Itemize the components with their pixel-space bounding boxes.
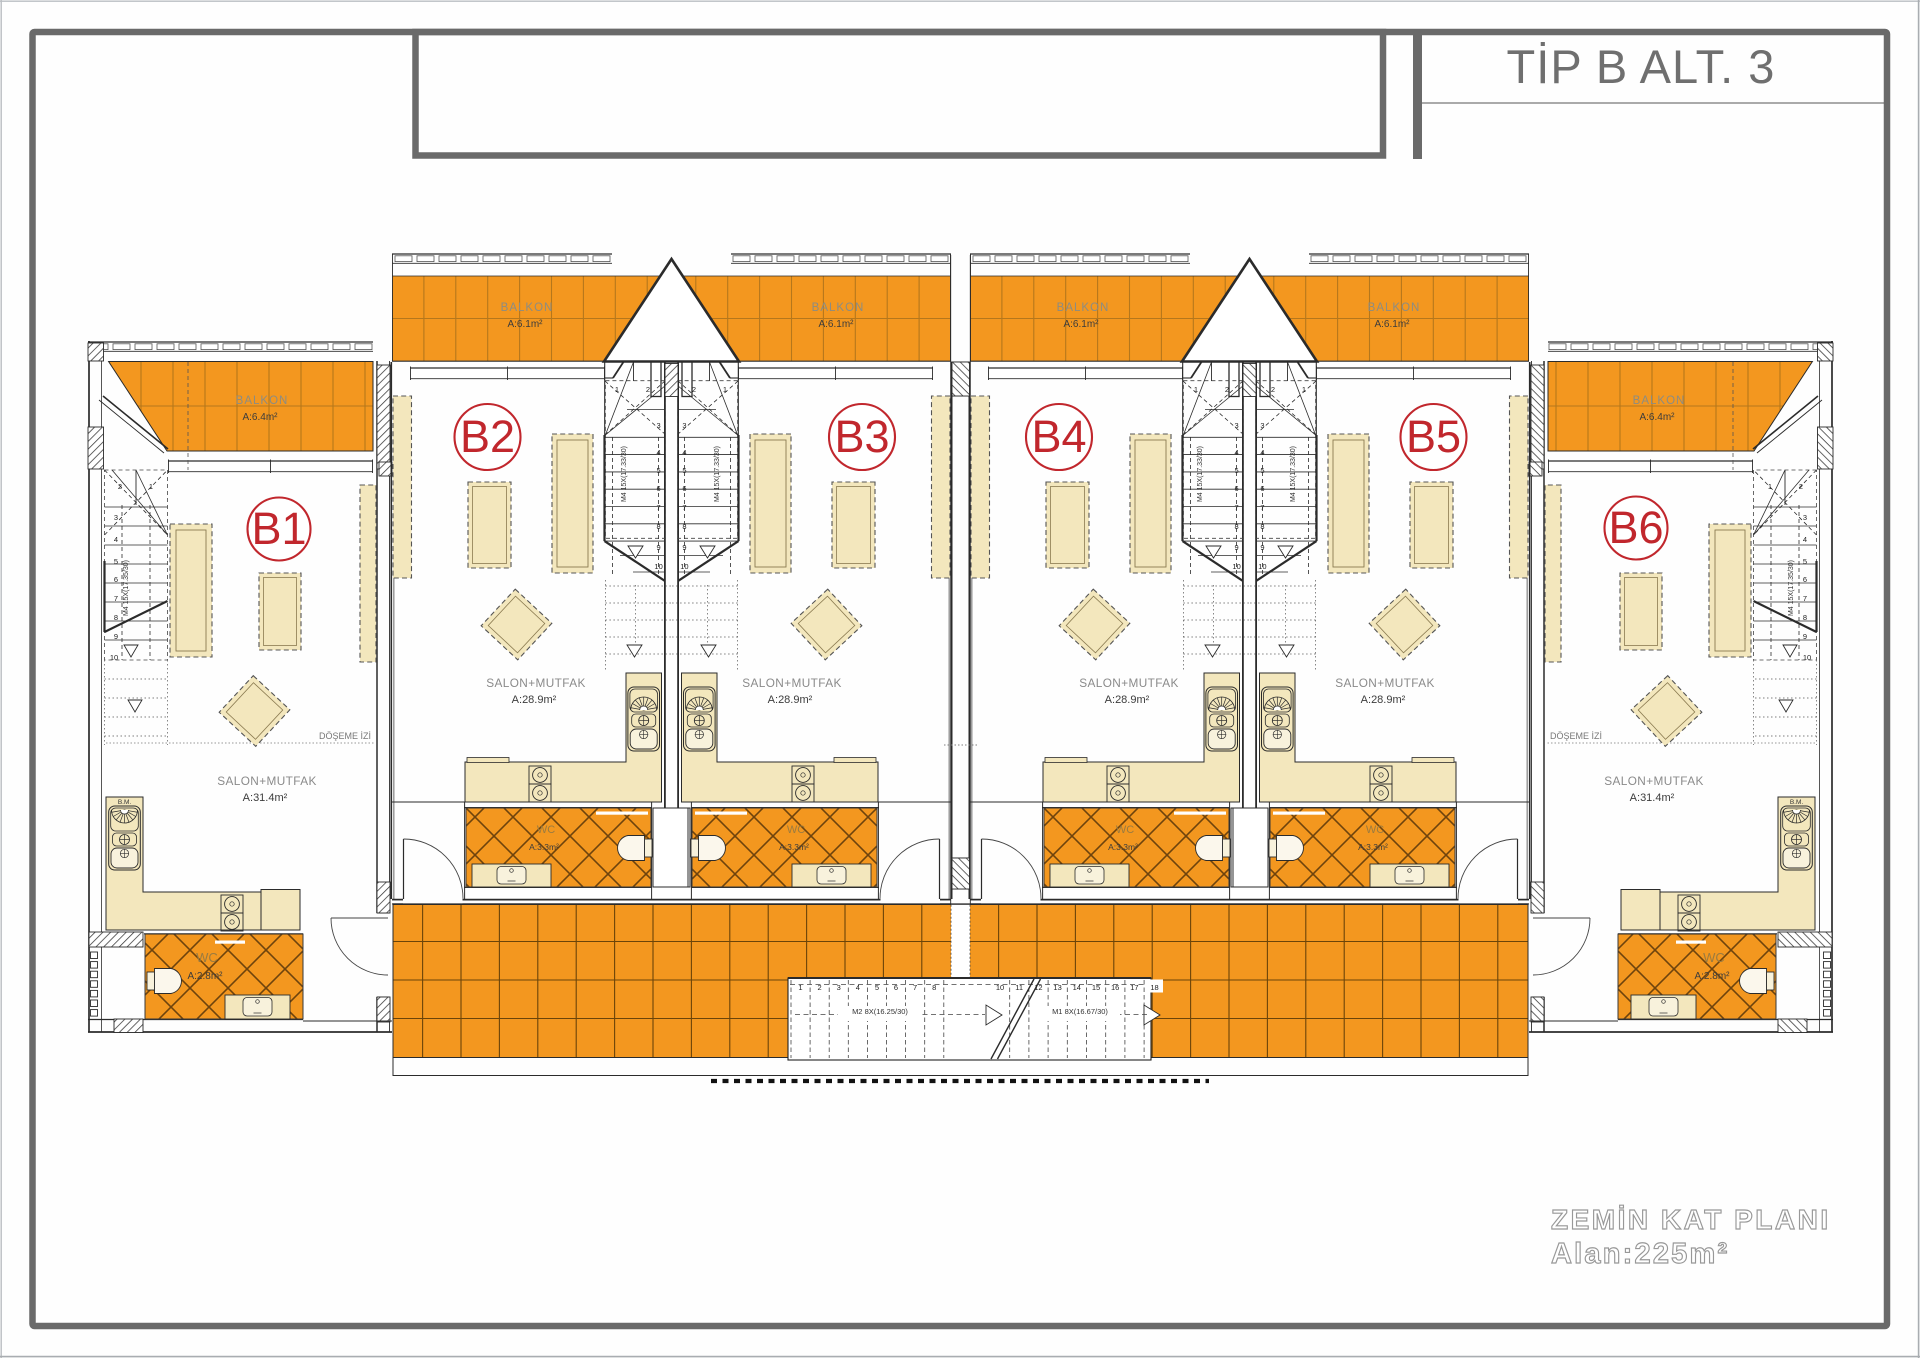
- svg-text:6: 6: [894, 983, 898, 992]
- svg-text:2: 2: [646, 385, 650, 394]
- svg-text:ZEMİN KAT PLANI: ZEMİN KAT PLANI: [1551, 1204, 1831, 1235]
- svg-text:4: 4: [856, 983, 860, 992]
- svg-text:M4 15X(17.35/30): M4 15X(17.35/30): [1788, 560, 1795, 616]
- svg-text:6: 6: [657, 484, 661, 493]
- svg-text:5: 5: [1260, 466, 1264, 475]
- svg-text:A:28.9m²: A:28.9m²: [512, 694, 557, 706]
- svg-text:BALKON: BALKON: [1057, 302, 1110, 314]
- svg-text:5: 5: [657, 466, 661, 475]
- svg-text:7: 7: [1260, 503, 1264, 512]
- svg-text:2: 2: [1271, 385, 1275, 394]
- svg-text:2: 2: [692, 385, 696, 394]
- svg-text:13: 13: [1053, 983, 1061, 992]
- svg-text:9: 9: [1803, 632, 1807, 641]
- svg-text:BALKON: BALKON: [1633, 395, 1686, 407]
- svg-text:8: 8: [114, 613, 118, 622]
- svg-text:4: 4: [657, 448, 661, 457]
- svg-text:10: 10: [654, 562, 662, 571]
- svg-text:3: 3: [837, 983, 841, 992]
- svg-text:WC: WC: [1116, 824, 1134, 836]
- svg-text:A:6.1m²: A:6.1m²: [1374, 319, 1410, 330]
- svg-text:1: 1: [1302, 385, 1306, 394]
- svg-text:17: 17: [1130, 983, 1138, 992]
- svg-text:WC: WC: [537, 824, 555, 836]
- svg-text:A:2.8m²: A:2.8m²: [1694, 971, 1730, 982]
- svg-text:A:6.1m²: A:6.1m²: [818, 319, 854, 330]
- svg-text:A:6.1m²: A:6.1m²: [1063, 319, 1099, 330]
- svg-text:15: 15: [1092, 983, 1100, 992]
- svg-text:A:6.4m²: A:6.4m²: [1639, 412, 1675, 423]
- svg-text:DÖŞEME İZİ: DÖŞEME İZİ: [1550, 731, 1602, 741]
- svg-text:10: 10: [1258, 562, 1266, 571]
- svg-text:4: 4: [1803, 535, 1807, 544]
- svg-text:4: 4: [1260, 448, 1264, 457]
- svg-text:M4 15X(17.33/30): M4 15X(17.33/30): [1290, 446, 1297, 502]
- svg-text:SALON+MUTFAK: SALON+MUTFAK: [1079, 676, 1179, 690]
- svg-text:5: 5: [114, 557, 118, 566]
- svg-text:B.M.: B.M.: [118, 799, 132, 806]
- svg-text:WC: WC: [787, 824, 805, 836]
- svg-text:A:31.4m²: A:31.4m²: [1630, 792, 1675, 804]
- svg-text:1: 1: [1194, 385, 1198, 394]
- svg-text:B.M.: B.M.: [1790, 799, 1804, 806]
- svg-text:A:6.4m²: A:6.4m²: [242, 412, 278, 423]
- svg-text:1: 1: [149, 482, 153, 491]
- svg-text:5: 5: [875, 983, 879, 992]
- svg-text:5: 5: [682, 466, 686, 475]
- svg-text:6: 6: [682, 484, 686, 493]
- svg-text:2: 2: [118, 482, 122, 491]
- svg-text:5: 5: [1235, 466, 1239, 475]
- svg-text:A:28.9m²: A:28.9m²: [1361, 694, 1406, 706]
- svg-text:1: 1: [723, 385, 727, 394]
- svg-text:A:3.3m²: A:3.3m²: [1358, 842, 1388, 852]
- svg-text:BALKON: BALKON: [501, 302, 554, 314]
- svg-text:9: 9: [114, 632, 118, 641]
- svg-text:9: 9: [1260, 543, 1264, 552]
- svg-text:A:2.8m²: A:2.8m²: [187, 971, 223, 982]
- svg-text:7: 7: [913, 983, 917, 992]
- svg-text:BALKON: BALKON: [1368, 302, 1421, 314]
- svg-text:B4: B4: [1031, 411, 1086, 462]
- svg-text:3: 3: [114, 513, 118, 522]
- svg-text:SALON+MUTFAK: SALON+MUTFAK: [217, 774, 317, 788]
- svg-text:SALON+MUTFAK: SALON+MUTFAK: [1604, 774, 1704, 788]
- svg-text:A:3.3m²: A:3.3m²: [1108, 842, 1138, 852]
- svg-text:6: 6: [1803, 575, 1807, 584]
- svg-text:18: 18: [1150, 983, 1158, 992]
- svg-text:10: 10: [680, 562, 688, 571]
- svg-text:8: 8: [1803, 613, 1807, 622]
- svg-text:3: 3: [682, 421, 686, 430]
- svg-text:A:3.3m²: A:3.3m²: [779, 842, 809, 852]
- svg-text:B5: B5: [1406, 411, 1461, 462]
- svg-text:11: 11: [1015, 983, 1023, 992]
- svg-text:BALKON: BALKON: [812, 302, 865, 314]
- svg-text:A:3.3m²: A:3.3m²: [529, 842, 559, 852]
- svg-text:7: 7: [114, 594, 118, 603]
- svg-text:10: 10: [996, 983, 1004, 992]
- svg-text:9: 9: [682, 543, 686, 552]
- svg-text:M4 15X(17.35/30): M4 15X(17.35/30): [123, 560, 130, 616]
- svg-text:1: 1: [1768, 482, 1772, 491]
- svg-text:A:6.1m²: A:6.1m²: [507, 319, 543, 330]
- svg-text:7: 7: [657, 503, 661, 512]
- svg-text:8: 8: [1260, 522, 1264, 531]
- svg-text:8: 8: [932, 983, 936, 992]
- svg-text:10: 10: [110, 653, 118, 662]
- svg-text:8: 8: [682, 522, 686, 531]
- svg-text:6: 6: [114, 575, 118, 584]
- svg-text:TİP B ALT. 3: TİP B ALT. 3: [1507, 40, 1776, 93]
- svg-text:14: 14: [1073, 983, 1081, 992]
- svg-text:Alan:225m²: Alan:225m²: [1551, 1238, 1729, 1270]
- svg-text:B2: B2: [460, 411, 515, 462]
- svg-text:A:28.9m²: A:28.9m²: [1105, 694, 1150, 706]
- svg-text:7: 7: [682, 503, 686, 512]
- svg-text:SALON+MUTFAK: SALON+MUTFAK: [742, 676, 842, 690]
- svg-text:B3: B3: [834, 411, 889, 462]
- svg-text:WC: WC: [196, 950, 218, 965]
- svg-text:WC: WC: [1703, 950, 1725, 965]
- svg-text:1: 1: [615, 385, 619, 394]
- svg-text:SALON+MUTFAK: SALON+MUTFAK: [1335, 676, 1435, 690]
- svg-text:6: 6: [1260, 484, 1264, 493]
- svg-text:10: 10: [1803, 653, 1811, 662]
- svg-text:A:31.4m²: A:31.4m²: [243, 792, 288, 804]
- svg-text:M2 8X(16.25/30): M2 8X(16.25/30): [852, 1007, 908, 1016]
- svg-text:1: 1: [798, 983, 802, 992]
- svg-text:7: 7: [1803, 594, 1807, 603]
- svg-text:WC: WC: [1366, 824, 1384, 836]
- svg-text:4: 4: [114, 535, 118, 544]
- svg-text:6: 6: [1235, 484, 1239, 493]
- svg-text:M4 15X(17.33/30): M4 15X(17.33/30): [1197, 446, 1204, 502]
- svg-text:8: 8: [1235, 522, 1239, 531]
- svg-text:2: 2: [1799, 482, 1803, 491]
- svg-text:2: 2: [1225, 385, 1229, 394]
- svg-text:8: 8: [657, 522, 661, 531]
- svg-text:B1: B1: [251, 503, 306, 554]
- svg-text:DÖŞEME İZİ: DÖŞEME İZİ: [319, 731, 371, 741]
- svg-text:10: 10: [1232, 562, 1240, 571]
- svg-text:B6: B6: [1608, 502, 1663, 553]
- svg-text:9: 9: [657, 543, 661, 552]
- svg-text:3: 3: [657, 421, 661, 430]
- svg-text:M4 15X(17.33/30): M4 15X(17.33/30): [714, 446, 721, 502]
- svg-text:3: 3: [1260, 421, 1264, 430]
- svg-text:9: 9: [1235, 543, 1239, 552]
- svg-text:SALON+MUTFAK: SALON+MUTFAK: [486, 676, 586, 690]
- svg-text:12: 12: [1034, 983, 1042, 992]
- svg-text:4: 4: [1235, 448, 1239, 457]
- svg-text:M4 15X(17.33/30): M4 15X(17.33/30): [621, 446, 628, 502]
- svg-text:5: 5: [1803, 557, 1807, 566]
- svg-text:M1 8X(16.67/30): M1 8X(16.67/30): [1052, 1007, 1108, 1016]
- svg-text:3: 3: [1803, 513, 1807, 522]
- svg-text:7: 7: [1235, 503, 1239, 512]
- svg-text:4: 4: [682, 448, 686, 457]
- svg-text:BALKON: BALKON: [236, 395, 289, 407]
- svg-text:3: 3: [1235, 421, 1239, 430]
- svg-text:2: 2: [818, 983, 822, 992]
- svg-text:A:28.9m²: A:28.9m²: [768, 694, 813, 706]
- svg-text:16: 16: [1111, 983, 1119, 992]
